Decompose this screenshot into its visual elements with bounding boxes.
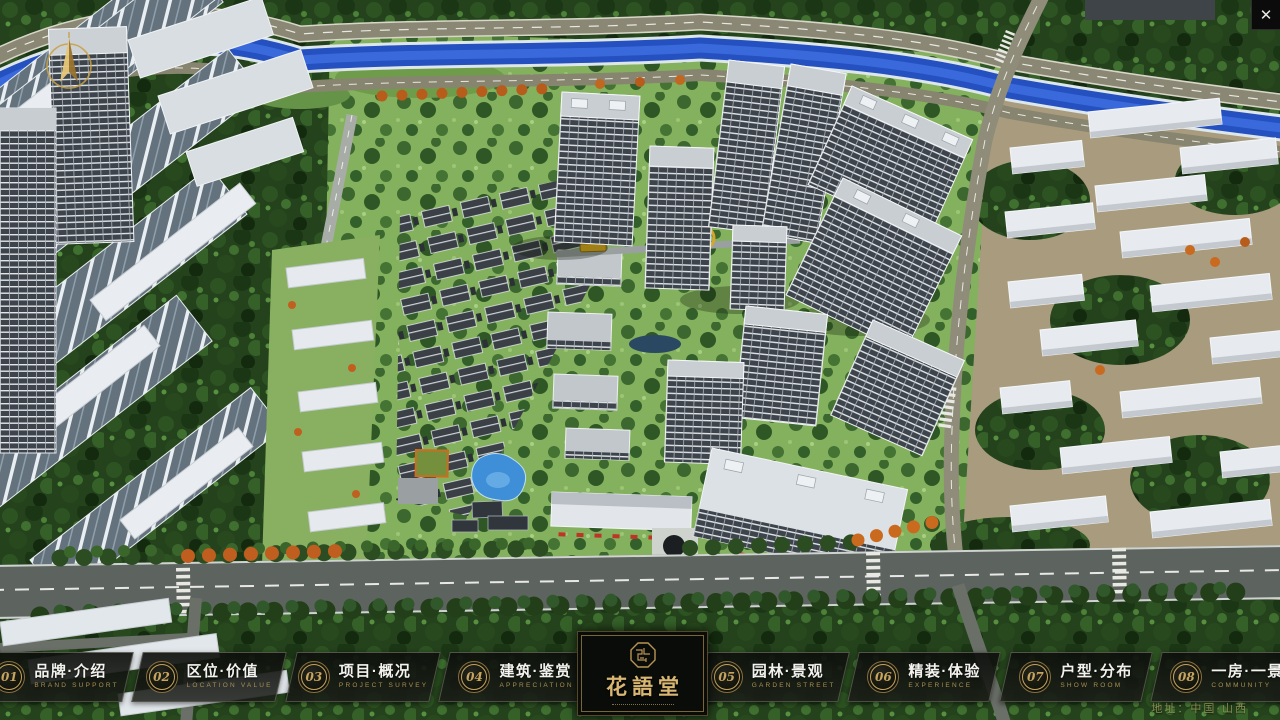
nav-label-zh: 项目·概况 [338, 664, 411, 679]
nav-label-zh: 园林·景观 [752, 664, 825, 679]
nav-label-zh: 户型·分布 [1060, 664, 1133, 679]
nav-item-project-survey[interactable]: 03 项目·概况 PROJECT SURVEY [285, 652, 441, 702]
aerial-masterplan-render [0, 0, 1280, 720]
nav-label-en: APPRECIATION [499, 683, 573, 690]
nav-number-badge: 01 [0, 661, 25, 693]
nav-number-badge: 07 [1019, 661, 1051, 693]
nav-number-badge: 05 [711, 661, 743, 693]
nav-label-zh: 一房·一景 [1211, 664, 1280, 679]
nav-label-en: COMMUNITY [1211, 683, 1271, 690]
nav-number-badge: 08 [1170, 661, 1202, 693]
nav-number-badge: 02 [146, 661, 178, 693]
project-logo-title: 花語堂 [601, 671, 684, 701]
nav-label-zh: 精装·体验 [909, 664, 982, 679]
nav-label-en: PROJECT SURVEY [338, 683, 427, 690]
nav-group-right: 05 园林·景观 GARDEN STREET 06 精装·体验 EXPERIEN… [702, 652, 1280, 702]
nav-number-badge: 06 [868, 661, 900, 693]
nav-item-brand-intro[interactable]: 01 品牌·介绍 BRAND SUPPORT [0, 652, 134, 702]
nav-label-en: EXPERIENCE [909, 683, 973, 690]
nav-item-one-room-one-view[interactable]: 08 一房·一景 COMMUNITY [1150, 652, 1280, 702]
nav-label-en: BRAND SUPPORT [34, 683, 118, 690]
nav-label-zh: 建筑·鉴赏 [499, 664, 572, 679]
nav-item-location-value[interactable]: 02 区位·价值 LOCATION VALUE [131, 652, 287, 702]
nav-item-architecture-appreciation[interactable]: 04 建筑·鉴赏 APPRECIATION [438, 652, 594, 702]
project-address: 地址：中国·山西 [1151, 700, 1248, 716]
nav-label-en: GARDEN STREET [752, 683, 836, 690]
nav-label-en: SHOW ROOM [1060, 683, 1122, 690]
nav-item-floorplan-distribution[interactable]: 07 户型·分布 SHOW ROOM [999, 652, 1153, 702]
nav-group-left: 01 品牌·介绍 BRAND SUPPORT 02 区位·价值 LOCATION… [0, 652, 588, 702]
project-logo-plaque[interactable]: 花語堂 [577, 631, 708, 716]
nav-label-zh: 区位·价值 [187, 664, 260, 679]
presentation-window: ✕ 01 品牌·介绍 BRAND SUPPORT 02 区位·价值 LOCATI… [0, 0, 1280, 720]
nav-number-badge: 04 [458, 661, 490, 693]
nav-item-garden-landscape[interactable]: 05 园林·景观 GARDEN STREET [696, 652, 850, 702]
nav-number-badge: 03 [297, 661, 329, 693]
brand-seal-icon [630, 642, 656, 668]
close-button[interactable]: ✕ [1251, 0, 1280, 30]
nav-label-en: LOCATION VALUE [187, 683, 273, 690]
project-logo-subtitle-line [612, 704, 674, 705]
nav-label-zh: 品牌·介绍 [34, 664, 107, 679]
nav-item-finishing-experience[interactable]: 06 精装·体验 EXPERIENCE [847, 652, 1001, 702]
compass-north-indicator [40, 30, 98, 96]
